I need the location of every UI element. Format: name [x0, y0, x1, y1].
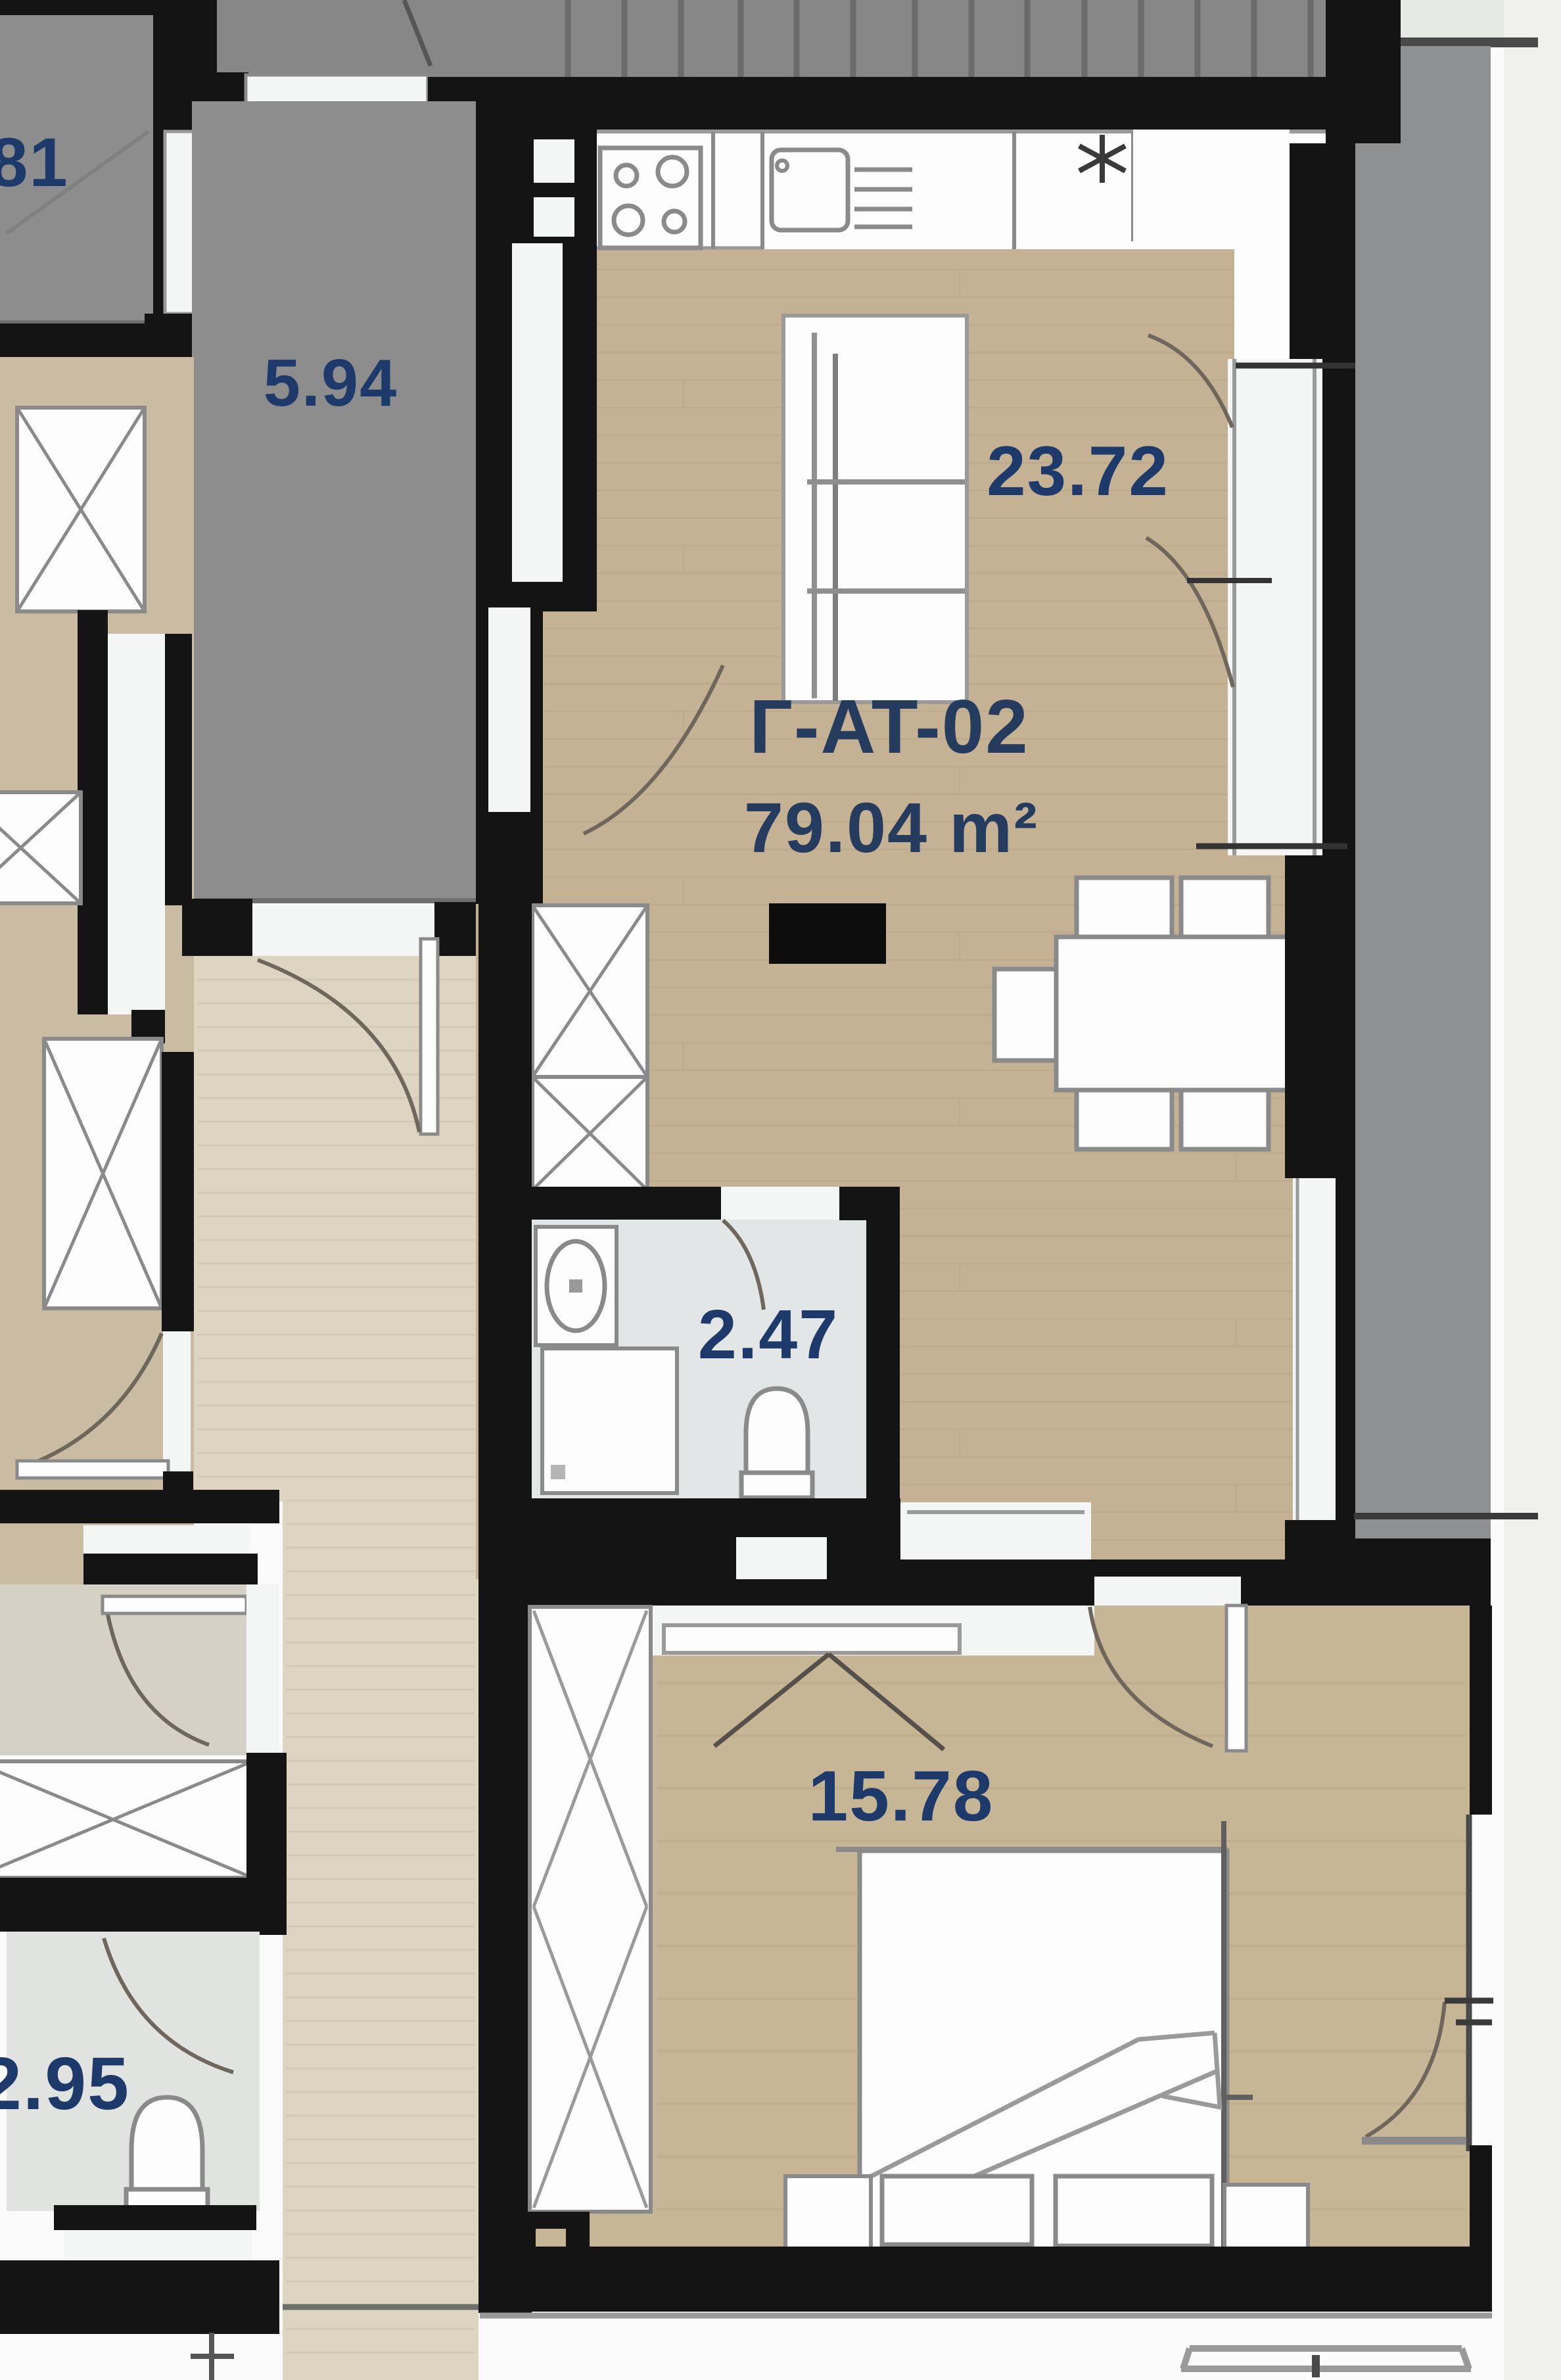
- svg-text:15.78: 15.78: [808, 1756, 994, 1836]
- svg-text:79.04 m²: 79.04 m²: [744, 788, 1038, 867]
- svg-text:Г-AT-02: Г-AT-02: [749, 684, 1029, 769]
- svg-text:5.94: 5.94: [264, 346, 398, 420]
- svg-text:81: 81: [0, 124, 69, 201]
- svg-text:23.72: 23.72: [987, 431, 1169, 510]
- svg-text:2.47: 2.47: [698, 1296, 839, 1373]
- svg-text:2.95: 2.95: [0, 2042, 130, 2125]
